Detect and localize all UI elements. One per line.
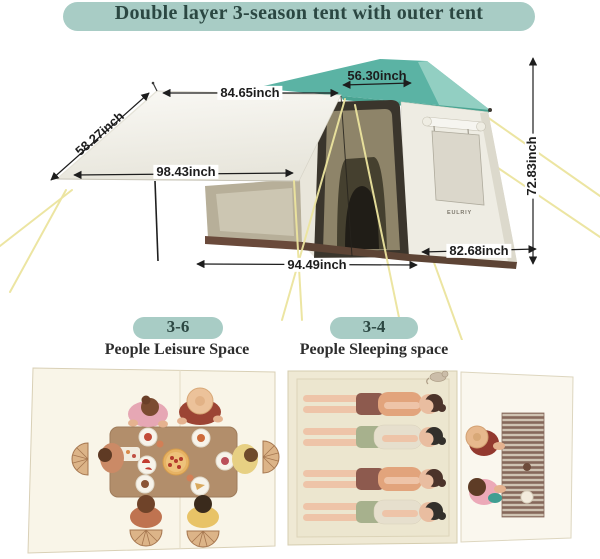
tent-porch-wall bbox=[205, 179, 302, 244]
chair-illustration bbox=[263, 441, 279, 473]
dimension-label-height: 72.83inch bbox=[525, 133, 539, 198]
dimension-label-roof-top: 56.30inch bbox=[344, 69, 409, 83]
dimension-label-awning-top: 84.65inch bbox=[217, 86, 282, 100]
product-infographic: Double layer 3-season tent with outer te… bbox=[0, 0, 600, 559]
sleeping-capacity-badge: 3-4 bbox=[330, 317, 418, 339]
dimension-label-front-width: 94.49inch bbox=[284, 258, 349, 272]
brand-logo: EULRIY bbox=[447, 210, 472, 216]
dimension-label-awning-front: 98.43inch bbox=[153, 165, 218, 179]
person-illustration bbox=[232, 444, 258, 474]
sleeping-capacity-caption: People Sleeping space bbox=[244, 341, 504, 359]
dimension-label-side-depth: 82.68inch bbox=[446, 244, 511, 258]
leisure-capacity-badge: 3-6 bbox=[133, 317, 223, 339]
page-title: Double layer 3-season tent with outer te… bbox=[63, 2, 535, 31]
floorplan-figure bbox=[0, 362, 600, 559]
guy-line bbox=[10, 190, 66, 292]
awning-pole bbox=[155, 181, 158, 261]
tent-door bbox=[314, 100, 409, 258]
pizza-illustration bbox=[163, 449, 189, 475]
tent-figure: EULRIY bbox=[0, 40, 600, 340]
